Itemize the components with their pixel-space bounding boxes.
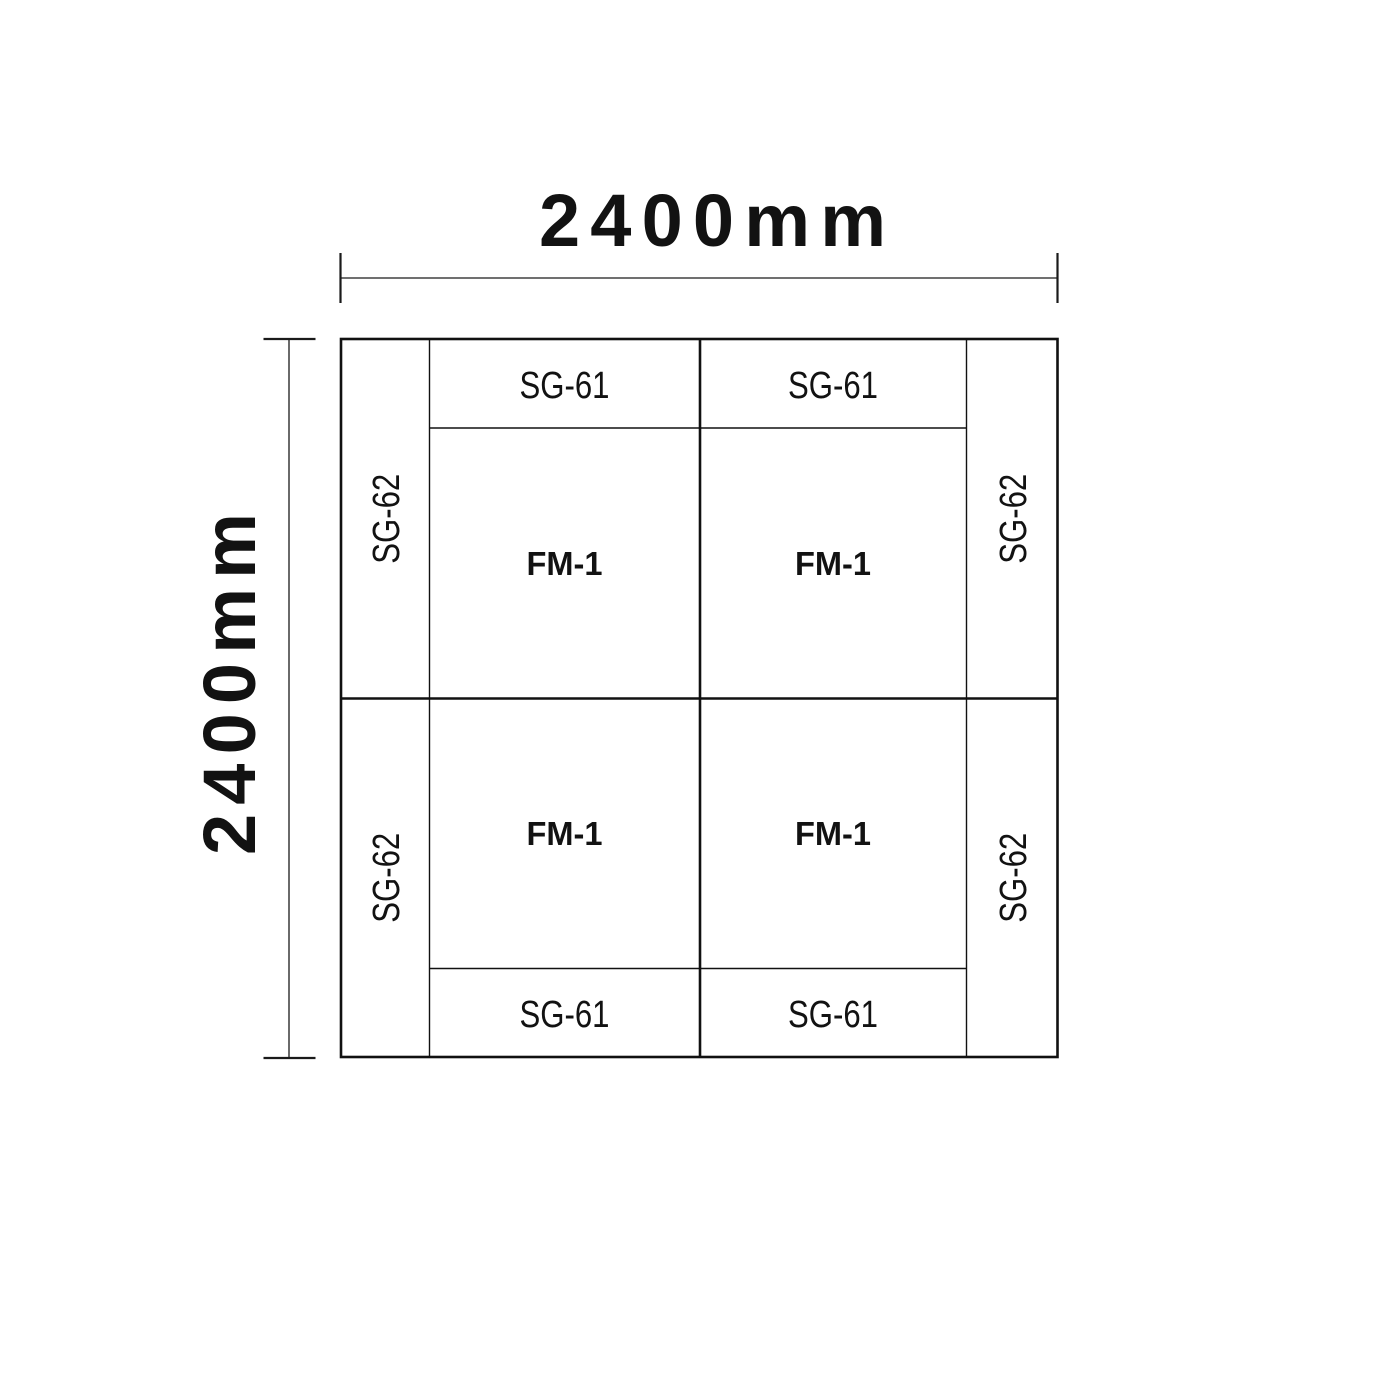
svg-text:SG-62: SG-62 bbox=[993, 474, 1035, 564]
svg-text:FM-1: FM-1 bbox=[795, 815, 871, 852]
svg-text:FM-1: FM-1 bbox=[527, 545, 603, 582]
svg-text:2400mm: 2400mm bbox=[188, 513, 271, 855]
svg-text:SG-62: SG-62 bbox=[366, 833, 408, 923]
svg-text:SG-61: SG-61 bbox=[520, 994, 610, 1036]
svg-text:2400mm: 2400mm bbox=[539, 179, 886, 262]
svg-text:SG-61: SG-61 bbox=[788, 994, 878, 1036]
svg-text:FM-1: FM-1 bbox=[527, 815, 603, 852]
svg-text:SG-61: SG-61 bbox=[788, 365, 878, 407]
svg-text:FM-1: FM-1 bbox=[795, 545, 871, 582]
svg-text:SG-62: SG-62 bbox=[366, 474, 408, 564]
svg-text:SG-61: SG-61 bbox=[520, 365, 610, 407]
svg-text:SG-62: SG-62 bbox=[993, 833, 1035, 923]
